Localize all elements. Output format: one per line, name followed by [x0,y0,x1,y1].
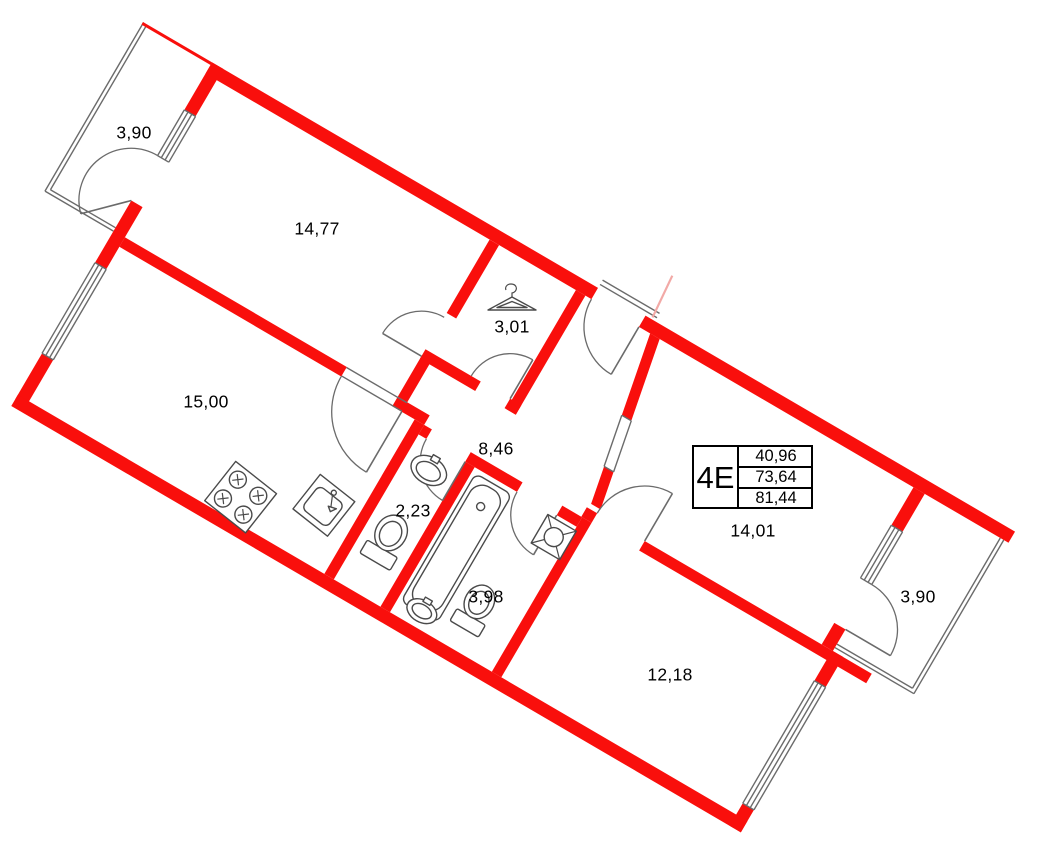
room-area-label-wc-2-23: 2,23 [395,501,430,522]
door-room-14-77 [383,295,445,357]
room-area-label-hall-8-46: 8,46 [478,439,513,460]
area-value-2: 73,64 [739,468,813,489]
floor-plan-canvas: 3,9014,7715,003,018,462,233,9814,0112,18… [0,0,1040,851]
opening-hall-14-01 [595,415,640,472]
room-area-label-room-12-18: 12,18 [647,665,692,686]
room-area-label-room-14-77: 14,77 [294,219,339,240]
neighbor-wall-line [649,276,676,318]
room-area-label-balcony-left: 3,90 [116,123,151,144]
exterior-walls [0,22,1015,851]
floor-plan-drawing [0,0,1040,851]
room-area-label-bathroom-3-98: 3,98 [468,587,503,608]
hanger-icon [488,284,536,310]
door-balcony-left [67,129,157,232]
window-room-15-00 [42,263,106,360]
room-area-label-room-14-01: 14,01 [730,521,775,542]
window-balcony-left [158,110,196,162]
room-area-label-room-15-00: 15,00 [183,392,228,413]
building-group [0,0,1039,851]
room-area-label-closet-3-01: 3,01 [494,317,529,338]
unit-info-table: 4E 40,96 73,64 81,44 [692,445,813,509]
washbasin-icon [406,447,454,492]
door-passage-15-00 [306,367,407,472]
unit-number: 4E [694,447,739,508]
window-room-12-18 [743,681,826,810]
room-area-label-balcony-right: 3,90 [900,587,935,608]
area-value-1: 40,96 [739,447,813,468]
area-value-3: 81,44 [739,489,813,508]
window-balcony-right [861,525,903,584]
kitchen-sink-icon [293,474,355,536]
